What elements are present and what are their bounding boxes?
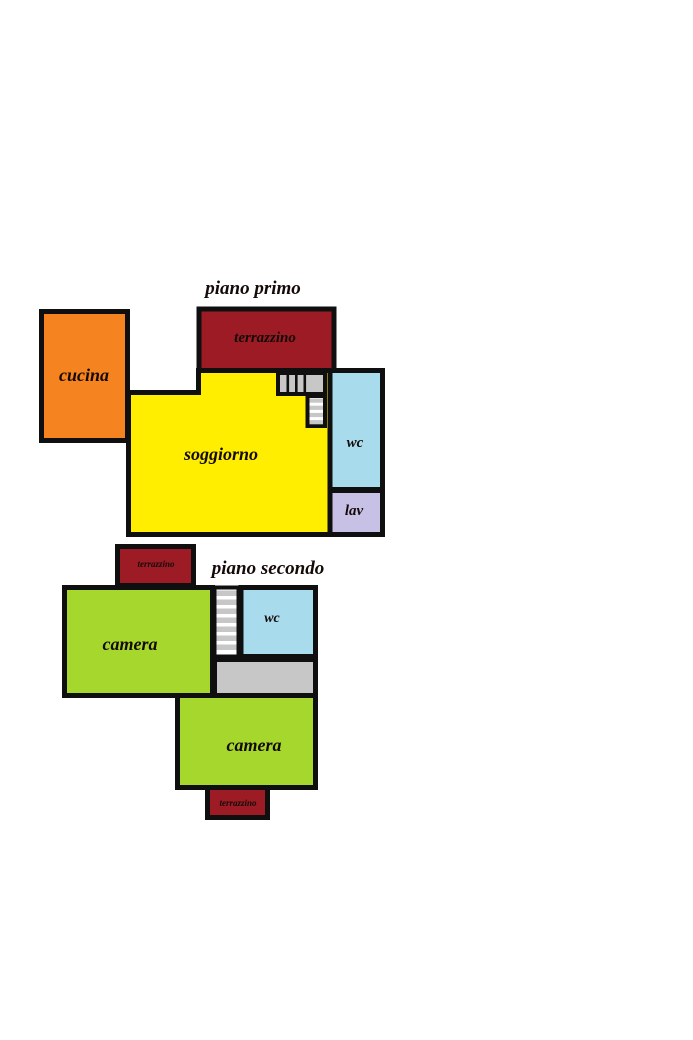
floor1-plan: piano primo cucina terrazzino so [42,278,383,535]
stairs-floor2 [215,588,239,657]
label-soggiorno: soggiorno [183,444,258,464]
stair-step [217,600,237,606]
floor2-title: piano secondo [210,558,324,579]
stair-step [217,627,237,633]
label-wc-floor2: wc [264,611,280,626]
floor2-plan: piano secondo terrazzino camera wc camer [65,547,325,818]
label-camera-bottom: camera [227,735,282,755]
stair-step [217,645,237,651]
floor-plan-drawing: piano primo cucina terrazzino so [0,0,693,1040]
floor-plan-page: piano primo cucina terrazzino so [0,0,693,1040]
label-lav: lav [345,503,364,519]
stair-step-divider [287,373,290,394]
label-camera-left: camera [103,634,158,654]
stairs-floor1-horizontal-run [278,373,325,394]
label-terrazzino-floor2-top: terrazzino [137,559,175,569]
stair-step [217,618,237,624]
stair-step [310,406,324,410]
stair-step-divider [304,373,307,394]
floor1-title: piano primo [203,278,301,299]
label-terrazzino-floor1: terrazzino [234,330,296,346]
stair-step-divider [295,373,298,394]
stairs-landing [278,373,325,394]
stair-step [217,636,237,642]
label-wc-floor1: wc [347,435,364,451]
label-terrazzino-floor2-bottom: terrazzino [219,798,257,808]
stair-step [310,413,324,417]
room-wc-floor1 [330,371,383,490]
stair-step [217,591,237,597]
landing-corridor [215,660,316,696]
stair-step [310,420,324,424]
label-cucina: cucina [59,365,109,385]
stairs-floor1-vertical-run [308,396,326,426]
stair-step [310,399,324,403]
stair-step [217,609,237,615]
